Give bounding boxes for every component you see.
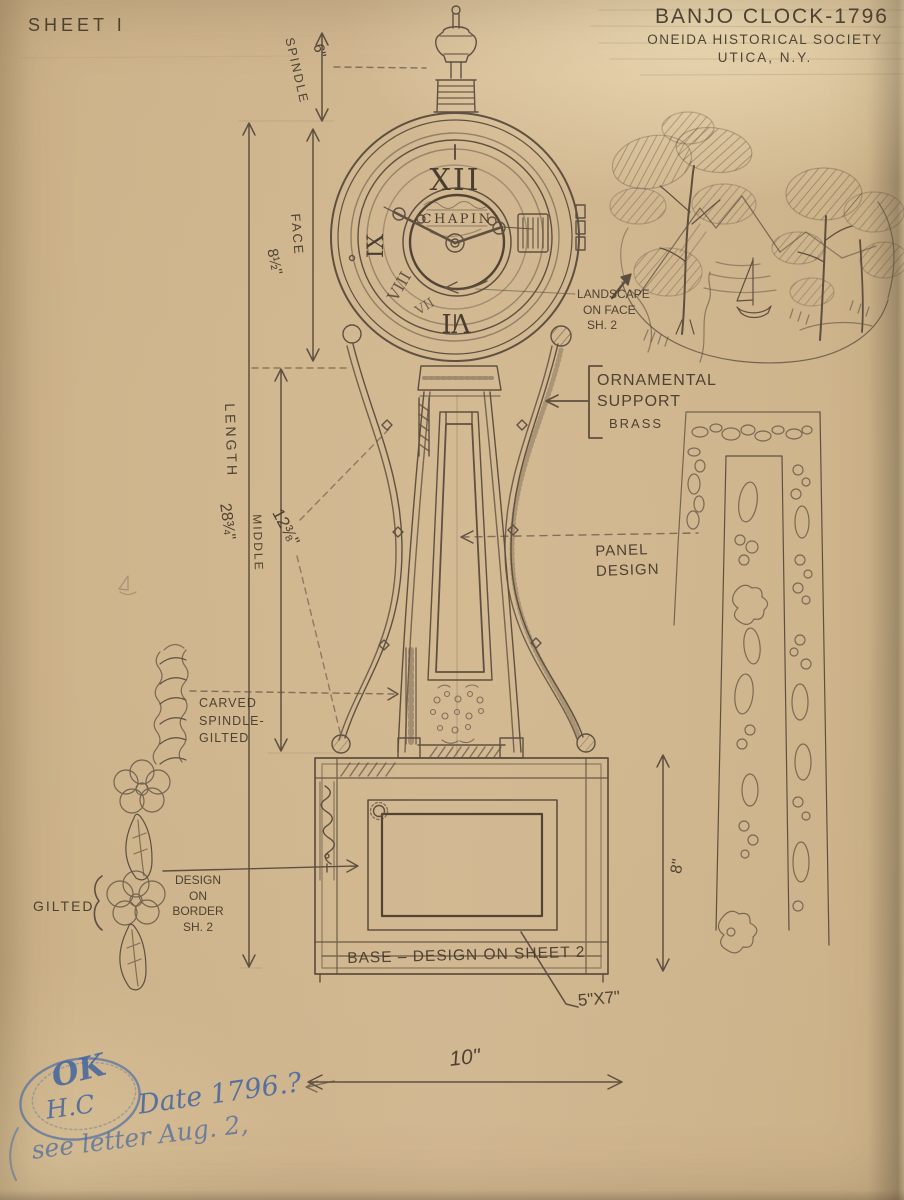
title: BANJO CLOCK-1796 (644, 3, 900, 30)
throat (398, 366, 523, 758)
finial (434, 6, 478, 112)
numeral-nine: IX (364, 233, 389, 258)
note-carved-line2: SPINDLE- (199, 713, 265, 731)
dim-face-label: FACE (286, 213, 306, 256)
note-panel-design: PANEL DESIGN (595, 540, 660, 581)
panel-design-detail (674, 412, 829, 953)
note-gilted: GILTED (33, 897, 95, 915)
face-numerals: XII IX VIII VII VI CHAPIN (364, 163, 492, 337)
sheet-label: SHEET I (28, 14, 126, 37)
note-border-line2: ON (166, 889, 230, 905)
title-organization: ONEIDA HISTORICAL SOCIETY (630, 31, 900, 49)
note-ornamental: ORNAMENTAL SUPPORT (597, 371, 717, 413)
note-carved-spindle: CARVED SPINDLE- GILTED (199, 695, 265, 748)
dim-length-label: LENGTH (221, 403, 242, 478)
note-carved-line3: GILTED (199, 730, 265, 748)
note-border-line1: DESIGN (166, 873, 230, 889)
garland (687, 424, 812, 953)
note-panel-line1: PANEL (595, 540, 659, 562)
title-location: UTICA, N.Y. (630, 49, 900, 67)
note-panel-line2: DESIGN (596, 559, 660, 581)
dim-middle-label: MIDDLE (248, 514, 266, 572)
dim-base-width-value: 10" (448, 1043, 482, 1073)
numeral-six: VI (441, 307, 471, 337)
numeral-eight: VIII (383, 268, 415, 305)
note-border-design: DESIGN ON BORDER SH. 2 (166, 873, 230, 935)
maker-name: CHAPIN (422, 212, 493, 227)
note-border-line4: SH. 2 (166, 920, 230, 936)
note-ornamental-line2: SUPPORT (597, 392, 717, 413)
pencil-drawing: XII IX VIII VII VI CHAPIN (0, 0, 904, 1200)
note-landscape-line1: LANDSCAPE (577, 287, 650, 303)
landscape-vignette (607, 112, 904, 363)
dim-panel-value: 5"X7" (577, 986, 621, 1012)
note-landscape-line2: ON FACE (577, 303, 650, 319)
note-carved-line1: CARVED (199, 695, 265, 713)
note-border-line3: BORDER (166, 904, 230, 920)
note-landscape-line3: SH. 2 (577, 318, 650, 334)
note-ornamental-line1: ORNAMENTAL (597, 371, 717, 392)
ruled-lines (20, 10, 904, 968)
note-ornamental-brass: BRASS (609, 416, 663, 433)
numeral-twelve: XII (429, 163, 480, 198)
note-landscape: LANDSCAPE ON FACE SH. 2 (577, 287, 650, 334)
drawing-sheet: XII IX VIII VII VI CHAPIN SHEET I BANJO … (0, 0, 904, 1200)
